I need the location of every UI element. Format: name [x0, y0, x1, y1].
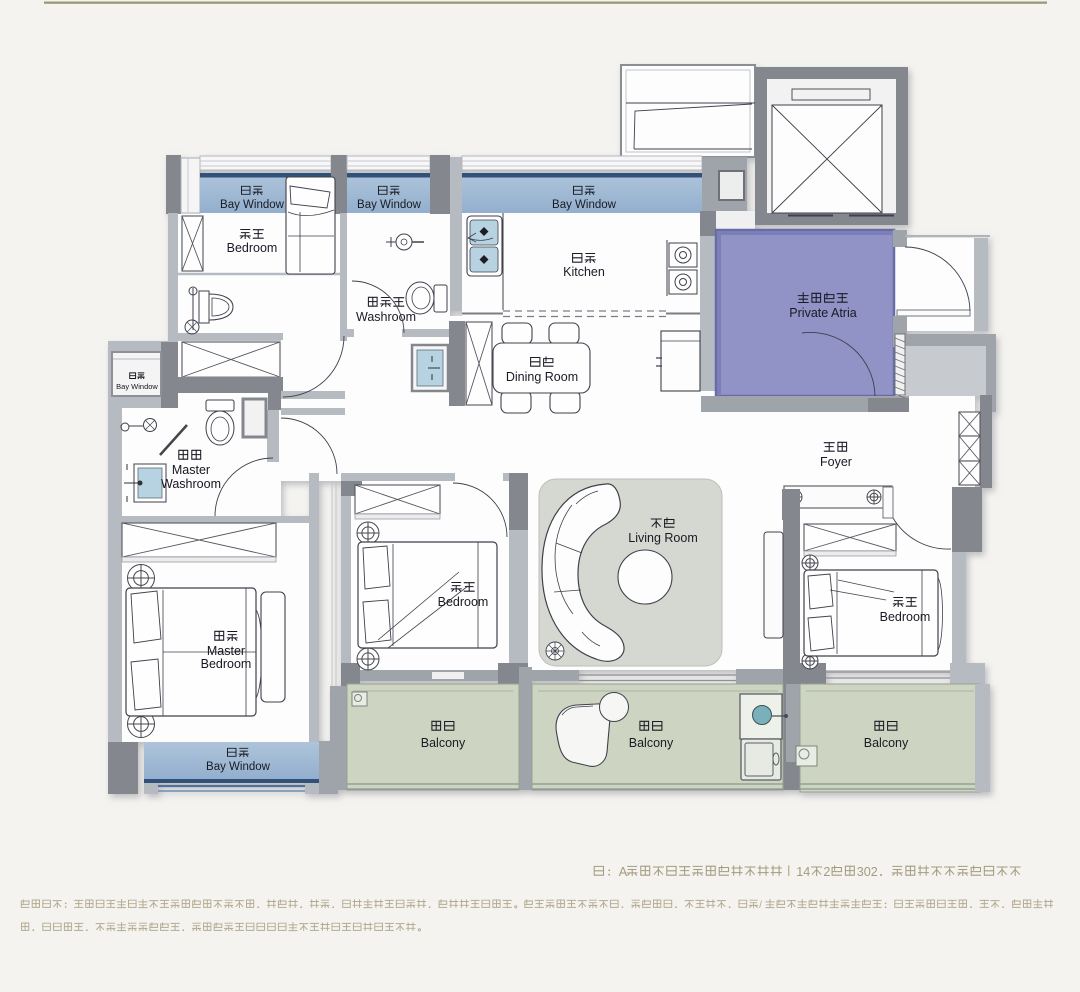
- svg-text:Dining Room: Dining Room: [506, 370, 578, 384]
- svg-text:Bedroom: Bedroom: [438, 595, 489, 609]
- svg-text:302: 302: [857, 865, 878, 879]
- svg-text:A: A: [619, 865, 628, 879]
- svg-text:Balcony: Balcony: [864, 736, 909, 750]
- svg-text:Bay Window: Bay Window: [206, 761, 271, 773]
- svg-text:2: 2: [823, 865, 830, 879]
- svg-text:14: 14: [796, 865, 810, 879]
- svg-text:Bay Window: Bay Window: [116, 382, 158, 391]
- svg-text:Washroom: Washroom: [161, 477, 221, 491]
- svg-text:Kitchen: Kitchen: [563, 265, 605, 279]
- svg-text:Bay Window: Bay Window: [220, 199, 285, 211]
- svg-text:/: /: [759, 900, 762, 911]
- svg-text:Master: Master: [207, 644, 245, 658]
- svg-text:Bay Window: Bay Window: [552, 199, 617, 211]
- svg-text:Bay Window: Bay Window: [357, 199, 422, 211]
- svg-text:Living Room: Living Room: [628, 531, 697, 545]
- svg-text:Balcony: Balcony: [421, 736, 466, 750]
- svg-text:Bedroom: Bedroom: [201, 657, 252, 671]
- svg-text:Balcony: Balcony: [629, 736, 674, 750]
- svg-text:Bedroom: Bedroom: [227, 241, 278, 255]
- svg-text:Private Atria: Private Atria: [789, 306, 856, 320]
- svg-text:Foyer: Foyer: [820, 455, 852, 469]
- svg-text:Bedroom: Bedroom: [880, 610, 931, 624]
- svg-text:Washroom: Washroom: [356, 310, 416, 324]
- svg-text:Master: Master: [172, 463, 210, 477]
